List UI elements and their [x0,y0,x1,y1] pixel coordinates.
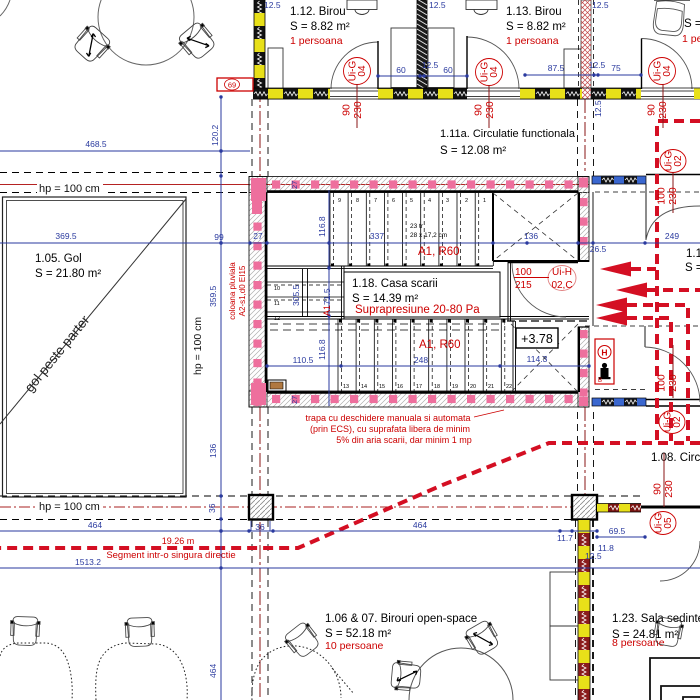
svg-text:1.05. Gol: 1.05. Gol [35,253,82,265]
svg-text:100: 100 [656,187,668,205]
svg-text:02: 02 [673,155,684,167]
svg-text:69: 69 [228,81,236,90]
svg-text:468.5: 468.5 [85,139,107,149]
svg-text:230: 230 [657,101,669,119]
svg-text:136: 136 [524,231,538,241]
svg-text:A2-s1,d0 EI15: A2-s1,d0 EI15 [238,265,247,316]
svg-text:28 x 17,2 cm: 28 x 17,2 cm [410,232,447,239]
svg-text:116.8: 116.8 [317,339,327,360]
svg-text:1.08. Circul: 1.08. Circul [651,452,700,464]
svg-text:H: H [601,348,607,358]
svg-text:87.5: 87.5 [548,63,565,73]
svg-text:20: 20 [470,384,476,390]
svg-text:11.7: 11.7 [557,533,573,543]
svg-text:13: 13 [343,384,349,390]
svg-text:69.5: 69.5 [609,526,626,536]
svg-text:6: 6 [392,198,395,204]
svg-text:136: 136 [208,444,218,458]
svg-text:12.5: 12.5 [589,60,606,70]
svg-text:5% din aria scarii, dar minim: 5% din aria scarii, dar minim 1 mp [336,435,472,445]
svg-text:18: 18 [434,384,440,390]
svg-text:23 tr: 23 tr [410,223,424,230]
svg-text:19.26 m: 19.26 m [162,536,195,546]
svg-text:230: 230 [484,101,496,119]
svg-text:04: 04 [662,65,673,77]
svg-text:S = 21.80 m²: S = 21.80 m² [35,268,101,280]
svg-text:36: 36 [207,503,217,513]
svg-text:114.3: 114.3 [527,354,548,364]
svg-text:12.5: 12.5 [264,0,281,10]
svg-text:90: 90 [646,104,658,116]
svg-text:27: 27 [290,181,299,189]
svg-text:1 persoana: 1 persoana [506,35,559,47]
svg-text:464: 464 [413,520,427,530]
svg-text:8: 8 [356,198,359,204]
svg-text:Segment intr-o singura directi: Segment intr-o singura directie [106,550,235,561]
svg-text:21: 21 [488,384,494,390]
svg-text:1: 1 [483,198,486,204]
svg-text:215: 215 [515,280,532,291]
svg-text:60: 60 [396,65,406,75]
svg-text:S = 52.18 m²: S = 52.18 m² [325,628,391,640]
svg-text:04: 04 [489,66,500,78]
svg-text:17: 17 [416,384,422,390]
svg-text:04: 04 [357,65,368,77]
svg-text:12.5: 12.5 [593,100,603,117]
svg-text:12.5: 12.5 [429,0,446,10]
svg-text:10: 10 [274,286,280,292]
svg-text:90: 90 [341,104,353,116]
svg-text:05: 05 [663,517,674,529]
svg-text:230: 230 [352,101,364,119]
svg-text:9: 9 [338,198,341,204]
svg-text:99: 99 [214,232,224,242]
svg-text:12.5: 12.5 [422,60,439,70]
svg-text:305.5: 305.5 [291,284,301,306]
svg-text:1.12. Birou: 1.12. Birou [290,6,346,18]
svg-text:hp = 100 cm: hp = 100 cm [39,501,100,513]
svg-text:A1: A1 [322,305,332,316]
svg-text:464: 464 [208,664,218,678]
svg-text:Suprapresiune 20-80 Pa: Suprapresiune 20-80 Pa [355,304,480,316]
svg-text:464: 464 [88,520,102,530]
svg-text:S = 8.82 m²: S = 8.82 m² [506,21,566,33]
svg-text:230: 230 [667,187,679,205]
svg-text:+3.78: +3.78 [521,332,553,346]
svg-text:4: 4 [428,198,431,204]
svg-text:100: 100 [515,267,532,278]
svg-text:337: 337 [370,231,384,241]
svg-text:1 persoana: 1 persoana [290,35,343,47]
svg-text:02,C: 02,C [551,280,572,291]
svg-text:5: 5 [410,198,413,204]
svg-text:12.5: 12.5 [585,551,602,561]
svg-text:1.1: 1.1 [686,248,700,260]
svg-text:60: 60 [443,65,453,75]
svg-text:02: 02 [672,416,683,428]
svg-text:1.13. Birou: 1.13. Birou [506,6,562,18]
svg-text:27: 27 [253,231,263,241]
svg-text:12.5: 12.5 [592,0,609,10]
svg-text:1 pe: 1 pe [682,33,700,45]
svg-text:S = 12.08 m²: S = 12.08 m² [440,145,506,157]
svg-text:90: 90 [652,483,664,495]
svg-text:90: 90 [473,104,485,116]
svg-text:hp = 100 cm: hp = 100 cm [192,317,204,375]
svg-text:116.8: 116.8 [317,216,327,237]
svg-text:2: 2 [465,198,468,204]
svg-text:120.2: 120.2 [210,124,220,146]
svg-text:14: 14 [361,384,367,390]
svg-text:1.06 & 07. Birouri open-space: 1.06 & 07. Birouri open-space [325,613,477,625]
svg-text:15: 15 [379,384,385,390]
svg-text:10 persoane: 10 persoane [325,640,384,652]
svg-text:75: 75 [611,63,621,73]
svg-text:1.11a. Circulatie functionala: 1.11a. Circulatie functionala [440,128,576,140]
svg-text:7: 7 [374,198,377,204]
svg-text:71.5: 71.5 [322,288,332,305]
svg-text:16: 16 [397,384,403,390]
svg-text:19: 19 [452,384,458,390]
svg-text:A1, R60: A1, R60 [418,246,460,258]
svg-text:230: 230 [663,480,675,498]
svg-text:B: B [598,378,602,384]
svg-text:36: 36 [255,522,265,532]
svg-text:248: 248 [414,355,428,365]
svg-text:S =: S = [685,262,700,274]
svg-text:3: 3 [446,198,449,204]
svg-text:coloana pluviala: coloana pluviala [228,262,237,320]
svg-text:100: 100 [656,374,668,392]
svg-text:110.5: 110.5 [293,355,314,365]
svg-text:hp = 100 cm: hp = 100 cm [39,183,100,195]
svg-text:359.5: 359.5 [208,285,218,307]
svg-text:369.5: 369.5 [55,231,77,241]
svg-text:(prin ECS), cu suprafata liber: (prin ECS), cu suprafata libera de minim [310,424,470,434]
svg-text:Ui-H: Ui-H [552,267,572,278]
svg-text:1.18. Casa scarii: 1.18. Casa scarii [352,278,438,290]
svg-text:A1, R60: A1, R60 [419,339,461,351]
svg-text:249: 249 [665,231,679,241]
svg-text:trapa cu deschidere manuala si: trapa cu deschidere manuala si automata [305,413,470,423]
svg-text:S = 8: S = 8 [684,18,700,30]
svg-text:22: 22 [506,384,512,390]
svg-text:1513.2: 1513.2 [75,557,101,567]
svg-text:27: 27 [290,396,299,404]
svg-text:26.5: 26.5 [590,244,607,254]
svg-text:S = 8.82 m²: S = 8.82 m² [290,21,350,33]
svg-text:11: 11 [274,301,280,307]
svg-text:230: 230 [667,374,679,392]
svg-text:8 persoane: 8 persoane [612,637,665,649]
